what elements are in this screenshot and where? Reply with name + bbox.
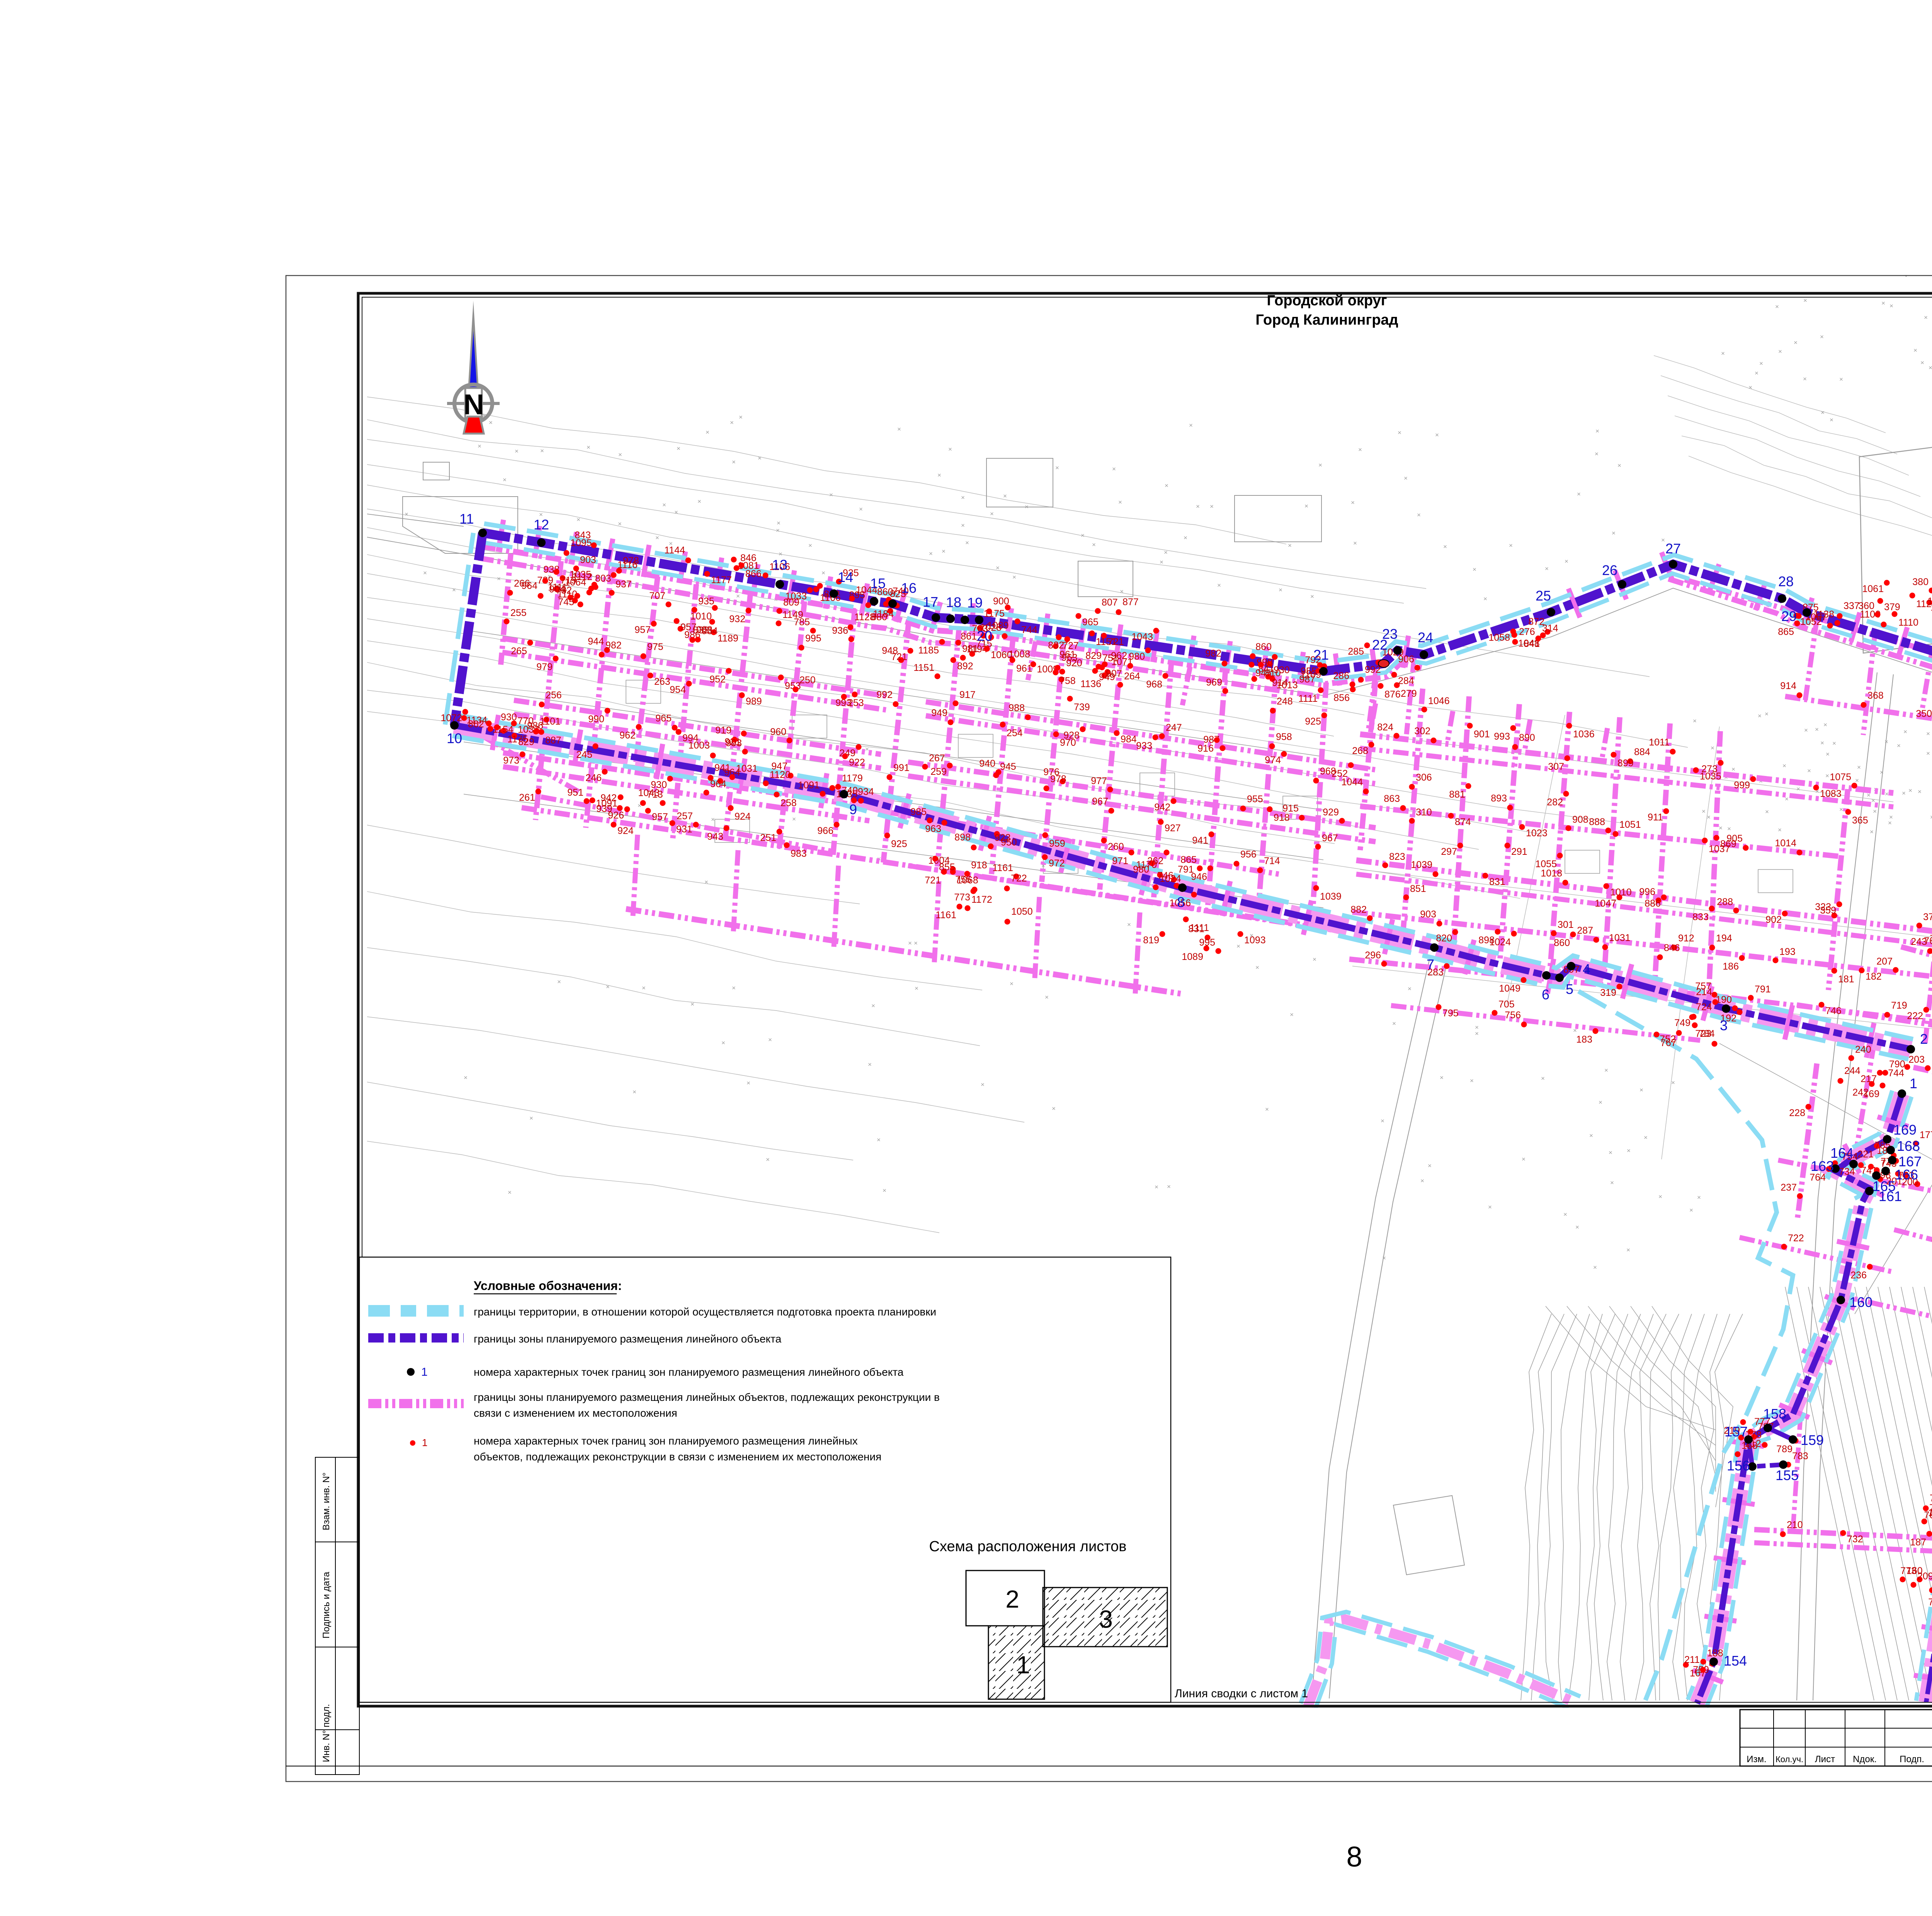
svg-text:×: × xyxy=(1358,446,1362,453)
svg-text:925: 925 xyxy=(1305,716,1321,727)
svg-text:907: 907 xyxy=(1106,668,1122,679)
svg-text:×: × xyxy=(1310,593,1314,600)
svg-text:751: 751 xyxy=(1102,653,1119,664)
svg-text:×: × xyxy=(515,448,519,455)
svg-text:914: 914 xyxy=(1272,677,1288,688)
svg-text:×: × xyxy=(965,539,969,546)
svg-text:×: × xyxy=(1815,726,1819,733)
svg-text:×: × xyxy=(961,494,965,501)
svg-text:719: 719 xyxy=(1891,1000,1907,1011)
svg-text:1170: 1170 xyxy=(1136,859,1157,870)
svg-text:154: 154 xyxy=(1724,1653,1747,1669)
svg-text:×: × xyxy=(452,586,456,594)
svg-text:×: × xyxy=(1689,1206,1693,1214)
svg-text:×: × xyxy=(706,429,709,436)
svg-text:758: 758 xyxy=(1060,676,1076,686)
svg-text:257: 257 xyxy=(677,811,693,822)
svg-text:×: × xyxy=(697,498,701,505)
svg-text:10: 10 xyxy=(447,730,462,746)
svg-text:2: 2 xyxy=(1005,1585,1019,1613)
svg-text:975: 975 xyxy=(647,642,663,652)
svg-text:250: 250 xyxy=(799,675,816,686)
svg-text:824: 824 xyxy=(1377,722,1393,733)
svg-text:×: × xyxy=(1918,788,1922,795)
svg-text:×: × xyxy=(1351,499,1355,506)
svg-text:795: 795 xyxy=(1442,1008,1459,1019)
svg-text:1058: 1058 xyxy=(1488,632,1510,643)
svg-text:Город Калининград: Город Калининград xyxy=(1255,312,1398,328)
svg-text:1136: 1136 xyxy=(1080,679,1101,689)
svg-text:×: × xyxy=(1855,777,1859,784)
svg-text:×: × xyxy=(1563,1211,1567,1218)
svg-text:276: 276 xyxy=(1519,626,1535,637)
svg-text:155: 155 xyxy=(1776,1467,1799,1483)
svg-text:936: 936 xyxy=(832,625,848,636)
svg-text:954: 954 xyxy=(670,684,686,695)
svg-text:181: 181 xyxy=(1838,974,1854,985)
svg-text:номера характерных точек грани: номера характерных точек границ зон план… xyxy=(474,1366,904,1378)
svg-text:×: × xyxy=(1881,299,1885,307)
svg-text:860: 860 xyxy=(1255,642,1272,652)
svg-text:970: 970 xyxy=(1060,737,1076,748)
svg-text:2: 2 xyxy=(1920,1031,1928,1047)
svg-text:×: × xyxy=(1012,573,1016,581)
svg-text:×: × xyxy=(423,569,427,577)
svg-text:261: 261 xyxy=(519,792,535,803)
svg-text:×: × xyxy=(1443,543,1447,550)
svg-text:943: 943 xyxy=(707,831,723,842)
svg-text:×: × xyxy=(1782,762,1786,769)
svg-text:11: 11 xyxy=(459,511,474,527)
svg-text:996: 996 xyxy=(1639,887,1655,897)
svg-text:993: 993 xyxy=(1494,731,1510,742)
svg-text:×: × xyxy=(1926,730,1930,737)
svg-text:999: 999 xyxy=(1734,780,1750,791)
svg-text:929: 929 xyxy=(1323,807,1339,818)
svg-text:782: 782 xyxy=(1929,1503,1932,1513)
svg-text:×: × xyxy=(606,983,610,990)
svg-text:×: × xyxy=(937,471,941,479)
svg-text:×: × xyxy=(1318,461,1322,469)
svg-text:211: 211 xyxy=(1684,1654,1700,1665)
svg-text:×: × xyxy=(1920,359,1924,366)
svg-text:749: 749 xyxy=(1674,1018,1690,1028)
svg-text:932: 932 xyxy=(729,614,745,624)
svg-text:×: × xyxy=(1902,790,1906,797)
svg-text:×: × xyxy=(1417,511,1421,519)
svg-text:×: × xyxy=(1288,542,1292,549)
svg-text:1149: 1149 xyxy=(782,609,803,620)
svg-text:1184: 1184 xyxy=(873,609,894,619)
svg-text:1003: 1003 xyxy=(688,740,710,751)
svg-text:930: 930 xyxy=(501,712,517,723)
svg-text:×: × xyxy=(1545,565,1549,572)
svg-text:256: 256 xyxy=(546,690,562,701)
svg-text:967: 967 xyxy=(1322,833,1338,844)
svg-text:×: × xyxy=(1003,492,1007,500)
svg-text:×: × xyxy=(1693,717,1697,725)
svg-text:1105: 1105 xyxy=(1930,602,1932,613)
svg-text:×: × xyxy=(662,501,666,509)
svg-text:888: 888 xyxy=(1589,817,1605,827)
svg-text:1091: 1091 xyxy=(798,780,820,791)
svg-text:1185: 1185 xyxy=(918,645,939,656)
svg-text:25: 25 xyxy=(1536,588,1551,604)
svg-text:863: 863 xyxy=(1384,793,1400,804)
svg-text:945: 945 xyxy=(1000,761,1016,772)
svg-text:714: 714 xyxy=(1264,856,1280,866)
svg-text:992: 992 xyxy=(1365,664,1381,675)
svg-text:×: × xyxy=(1929,364,1932,371)
svg-text:214: 214 xyxy=(1696,987,1712,997)
svg-text:×: × xyxy=(1697,1194,1701,1201)
svg-text:×: × xyxy=(1575,1223,1579,1231)
svg-text:287: 287 xyxy=(1577,925,1593,936)
svg-text:282: 282 xyxy=(1547,797,1563,808)
svg-text:886: 886 xyxy=(1645,898,1661,909)
svg-text:×: × xyxy=(821,569,825,577)
svg-text:288: 288 xyxy=(1717,897,1733,907)
svg-text:1161: 1161 xyxy=(935,910,956,921)
svg-text:862: 862 xyxy=(468,719,484,730)
svg-text:307: 307 xyxy=(1548,761,1564,772)
svg-text:365: 365 xyxy=(1852,815,1868,826)
svg-text:899: 899 xyxy=(1617,758,1634,769)
svg-text:19: 19 xyxy=(967,595,983,611)
svg-text:268: 268 xyxy=(1352,745,1368,756)
svg-text:×: × xyxy=(768,1036,772,1043)
svg-text:×: × xyxy=(747,1079,750,1087)
svg-text:×: × xyxy=(1832,740,1836,747)
svg-text:×: × xyxy=(1748,384,1752,391)
svg-text:291: 291 xyxy=(1511,846,1527,857)
svg-text:×: × xyxy=(1279,586,1282,594)
svg-text:×: × xyxy=(508,1189,512,1196)
svg-text:302: 302 xyxy=(1414,726,1430,737)
svg-text:874: 874 xyxy=(1455,817,1471,827)
svg-text:×: × xyxy=(1627,1147,1631,1154)
svg-text:×: × xyxy=(990,510,994,517)
svg-text:×: × xyxy=(503,476,507,483)
svg-text:194: 194 xyxy=(1716,933,1732,944)
svg-text:985: 985 xyxy=(910,807,927,817)
svg-text:188: 188 xyxy=(1707,1648,1723,1659)
svg-text:158: 158 xyxy=(1763,1406,1786,1422)
svg-text:993: 993 xyxy=(726,738,742,749)
svg-text:163: 163 xyxy=(1811,1158,1834,1174)
svg-text:1031: 1031 xyxy=(1609,932,1631,943)
svg-text:968: 968 xyxy=(1320,766,1336,777)
svg-text:807: 807 xyxy=(1102,597,1118,608)
svg-text:900: 900 xyxy=(993,596,1009,607)
svg-text:746: 746 xyxy=(1825,1006,1842,1016)
svg-text:×: × xyxy=(1897,742,1901,749)
svg-text:×: × xyxy=(1930,813,1932,821)
svg-text:960: 960 xyxy=(770,727,786,737)
svg-text:×: × xyxy=(948,446,952,453)
svg-text:1: 1 xyxy=(422,1437,427,1448)
svg-text:168: 168 xyxy=(1897,1138,1920,1154)
svg-text:×: × xyxy=(808,542,812,549)
svg-text:182: 182 xyxy=(1866,971,1882,982)
svg-text:×: × xyxy=(1522,1155,1526,1163)
svg-text:922: 922 xyxy=(849,757,865,768)
svg-text:186: 186 xyxy=(1723,961,1739,972)
svg-text:×: × xyxy=(1839,806,1843,813)
svg-text:893: 893 xyxy=(1491,793,1507,804)
svg-text:1049: 1049 xyxy=(1499,983,1520,994)
svg-text:3: 3 xyxy=(1099,1605,1113,1633)
svg-text:24: 24 xyxy=(1418,630,1433,645)
svg-text:×: × xyxy=(540,447,544,454)
svg-text:×: × xyxy=(1488,1203,1492,1211)
svg-text:×: × xyxy=(1820,739,1824,747)
svg-text:×: × xyxy=(868,1061,872,1068)
svg-text:988: 988 xyxy=(1009,703,1025,713)
svg-text:×: × xyxy=(883,1187,886,1194)
svg-text:744: 744 xyxy=(1888,1068,1904,1079)
svg-text:966: 966 xyxy=(817,825,833,836)
svg-text:982: 982 xyxy=(605,640,622,651)
svg-text:×: × xyxy=(1794,339,1798,346)
svg-text:161: 161 xyxy=(1879,1188,1902,1204)
svg-text:286: 286 xyxy=(1333,670,1349,681)
svg-text:314: 314 xyxy=(1542,623,1558,634)
svg-text:833: 833 xyxy=(1692,912,1709,922)
svg-text:987: 987 xyxy=(1299,674,1315,685)
svg-text:979: 979 xyxy=(536,662,553,672)
svg-text:×: × xyxy=(577,516,580,523)
svg-text:267: 267 xyxy=(929,753,945,764)
svg-text:901: 901 xyxy=(1474,729,1490,740)
svg-text:×: × xyxy=(865,745,869,753)
svg-text:882: 882 xyxy=(1350,904,1367,915)
svg-text:306: 306 xyxy=(1416,772,1432,783)
svg-text:×: × xyxy=(1118,499,1122,506)
svg-text:18: 18 xyxy=(946,594,961,610)
svg-text:851: 851 xyxy=(1410,883,1426,894)
svg-text:×: × xyxy=(1440,1074,1444,1081)
svg-text:955: 955 xyxy=(1247,794,1263,805)
svg-text:×: × xyxy=(721,1039,725,1046)
svg-text:×: × xyxy=(1055,464,1059,471)
svg-text:1010: 1010 xyxy=(1610,887,1632,898)
svg-text:×: × xyxy=(677,445,680,452)
svg-text:1014: 1014 xyxy=(1775,838,1796,849)
svg-text:246: 246 xyxy=(585,773,602,783)
svg-text:×: × xyxy=(1595,450,1599,458)
svg-text:Взам. инв. N°: Взам. инв. N° xyxy=(321,1472,332,1530)
svg-text:×: × xyxy=(711,816,715,823)
svg-text:752: 752 xyxy=(1660,1034,1676,1045)
svg-text:1: 1 xyxy=(1016,1651,1030,1679)
svg-text:898: 898 xyxy=(954,832,971,843)
svg-text:×: × xyxy=(1727,825,1731,832)
svg-text:×: × xyxy=(1913,347,1917,354)
svg-text:253: 253 xyxy=(848,698,864,708)
svg-text:Nдок.: Nдок. xyxy=(1853,1754,1877,1765)
svg-text:707: 707 xyxy=(649,590,665,601)
svg-text:1177: 1177 xyxy=(711,575,732,585)
svg-text:258: 258 xyxy=(781,798,797,808)
svg-text:×: × xyxy=(877,1136,881,1143)
svg-text:17: 17 xyxy=(923,594,938,610)
svg-text:942: 942 xyxy=(1154,802,1170,813)
svg-text:8: 8 xyxy=(1346,1841,1362,1873)
svg-text:941: 941 xyxy=(1192,835,1208,846)
svg-text:1: 1 xyxy=(421,1366,428,1378)
svg-text:×: × xyxy=(405,510,408,518)
svg-text:982: 982 xyxy=(1205,648,1221,659)
svg-text:×: × xyxy=(690,1001,694,1008)
svg-text:×: × xyxy=(1758,712,1762,720)
svg-text:×: × xyxy=(1155,1183,1158,1191)
svg-text:350: 350 xyxy=(1916,708,1932,719)
svg-text:744: 744 xyxy=(1021,624,1037,635)
svg-text:914: 914 xyxy=(1780,681,1796,691)
svg-text:16: 16 xyxy=(901,580,917,596)
svg-text:984: 984 xyxy=(1121,734,1137,745)
svg-text:×: × xyxy=(1870,828,1874,835)
svg-text:×: × xyxy=(1803,297,1807,304)
svg-text:1050: 1050 xyxy=(1011,906,1033,917)
svg-text:783: 783 xyxy=(1792,1451,1808,1462)
svg-text:границы территории, в отношени: границы территории, в отношении которой … xyxy=(474,1306,936,1318)
svg-text:6: 6 xyxy=(1542,987,1549,1002)
svg-text:×: × xyxy=(1593,1264,1597,1271)
svg-text:29: 29 xyxy=(1781,608,1797,624)
svg-text:12: 12 xyxy=(534,517,549,533)
svg-text:855: 855 xyxy=(939,862,955,873)
svg-text:×: × xyxy=(871,1002,875,1009)
svg-text:1179: 1179 xyxy=(842,773,863,784)
svg-text:×: × xyxy=(1658,1193,1662,1200)
svg-text:964: 964 xyxy=(710,779,726,790)
svg-text:160: 160 xyxy=(1849,1294,1872,1310)
svg-text:×: × xyxy=(732,984,736,992)
svg-text:13: 13 xyxy=(772,557,787,573)
svg-text:959: 959 xyxy=(1049,838,1065,849)
svg-text:×: × xyxy=(1671,1079,1675,1086)
svg-text:×: × xyxy=(758,454,762,462)
svg-text:Подпись и дата: Подпись и дата xyxy=(321,1572,332,1639)
svg-text:1068: 1068 xyxy=(957,875,978,886)
svg-text:×: × xyxy=(1210,503,1214,510)
svg-text:803: 803 xyxy=(595,573,611,584)
svg-text:×: × xyxy=(1092,541,1096,548)
svg-text:×: × xyxy=(766,1156,770,1163)
svg-text:×: × xyxy=(1609,1149,1612,1156)
svg-text:×: × xyxy=(1473,566,1476,573)
svg-text:1039: 1039 xyxy=(1320,891,1342,902)
svg-text:×: × xyxy=(529,1115,533,1122)
svg-text:1110: 1110 xyxy=(1898,617,1918,628)
svg-text:×: × xyxy=(1398,429,1401,436)
svg-text:1036: 1036 xyxy=(1573,729,1595,740)
svg-text:978: 978 xyxy=(1050,774,1066,784)
svg-text:890: 890 xyxy=(1519,732,1535,743)
svg-text:798: 798 xyxy=(1930,1493,1932,1504)
svg-text:×: × xyxy=(1610,1179,1614,1186)
svg-text:951: 951 xyxy=(567,787,583,798)
svg-text:границы зоны планируемого разм: границы зоны планируемого размещения лин… xyxy=(474,1333,782,1345)
svg-text:1144: 1144 xyxy=(664,545,685,556)
svg-text:809: 809 xyxy=(783,597,799,608)
svg-text:×: × xyxy=(1392,1020,1396,1027)
svg-text:360: 360 xyxy=(1858,601,1874,611)
svg-text:722: 722 xyxy=(1011,873,1027,884)
svg-text:×: × xyxy=(1755,369,1759,377)
svg-text:1175: 1175 xyxy=(507,734,528,745)
svg-text:1091: 1091 xyxy=(596,798,617,809)
svg-text:919: 919 xyxy=(715,725,731,736)
svg-text:187: 187 xyxy=(1910,1537,1926,1548)
svg-text:×: × xyxy=(1589,1132,1593,1139)
svg-text:7: 7 xyxy=(1427,956,1434,972)
svg-text:×: × xyxy=(478,442,481,450)
svg-text:925: 925 xyxy=(891,839,907,849)
svg-text:166: 166 xyxy=(1895,1167,1918,1183)
svg-text:902: 902 xyxy=(1765,914,1782,925)
svg-text:924: 924 xyxy=(617,825,634,836)
svg-text:×: × xyxy=(1404,475,1408,482)
svg-text:992: 992 xyxy=(876,689,893,700)
svg-text:865: 865 xyxy=(1778,626,1794,637)
svg-text:1039: 1039 xyxy=(1411,859,1432,870)
svg-text:207: 207 xyxy=(1876,956,1893,967)
svg-text:Кол.уч.: Кол.уч. xyxy=(1776,1754,1803,1764)
svg-text:15: 15 xyxy=(870,575,886,591)
svg-text:×: × xyxy=(1196,503,1200,510)
svg-text:×: × xyxy=(1926,750,1930,757)
svg-text:869: 869 xyxy=(1720,839,1736,849)
svg-text:724: 724 xyxy=(1696,1002,1712,1012)
svg-text:×: × xyxy=(1483,595,1487,602)
svg-text:×: × xyxy=(1189,422,1193,429)
svg-text:927: 927 xyxy=(1165,823,1181,834)
svg-text:1055: 1055 xyxy=(1535,859,1557,870)
svg-text:935: 935 xyxy=(698,596,714,607)
svg-text:×: × xyxy=(1903,728,1907,735)
svg-text:связи с изменением их местопол: связи с изменением их местоположения xyxy=(474,1407,677,1419)
svg-text:26: 26 xyxy=(1602,562,1617,578)
svg-text:1111: 1111 xyxy=(1298,693,1318,704)
svg-text:×: × xyxy=(1184,534,1187,541)
svg-text:1189: 1189 xyxy=(718,633,738,644)
svg-text:1008: 1008 xyxy=(1009,649,1030,660)
svg-text:границы зоны планируемого разм: границы зоны планируемого размещения лин… xyxy=(474,1391,940,1403)
svg-text:×: × xyxy=(1702,808,1706,815)
svg-text:284: 284 xyxy=(1398,676,1414,686)
svg-text:×: × xyxy=(1164,549,1168,556)
svg-text:279: 279 xyxy=(1401,688,1417,699)
svg-text:904: 904 xyxy=(549,584,565,595)
svg-text:×: × xyxy=(674,509,678,516)
svg-text:1120: 1120 xyxy=(770,769,791,780)
svg-text:Схема расположения листов: Схема расположения листов xyxy=(929,1538,1126,1555)
svg-text:×: × xyxy=(1626,1246,1630,1254)
svg-text:Линия сводки с листом 1: Линия сводки с листом 1 xyxy=(1175,1687,1308,1700)
svg-text:1151: 1151 xyxy=(913,662,934,673)
svg-text:721: 721 xyxy=(891,652,907,662)
svg-text:×: × xyxy=(1052,1105,1056,1112)
svg-text:×: × xyxy=(1565,558,1568,565)
svg-text:183: 183 xyxy=(1576,1034,1592,1045)
svg-text:251: 251 xyxy=(760,832,776,843)
svg-text:933: 933 xyxy=(1136,740,1152,751)
svg-text:×: × xyxy=(1290,1011,1294,1018)
svg-text:259: 259 xyxy=(930,766,947,777)
